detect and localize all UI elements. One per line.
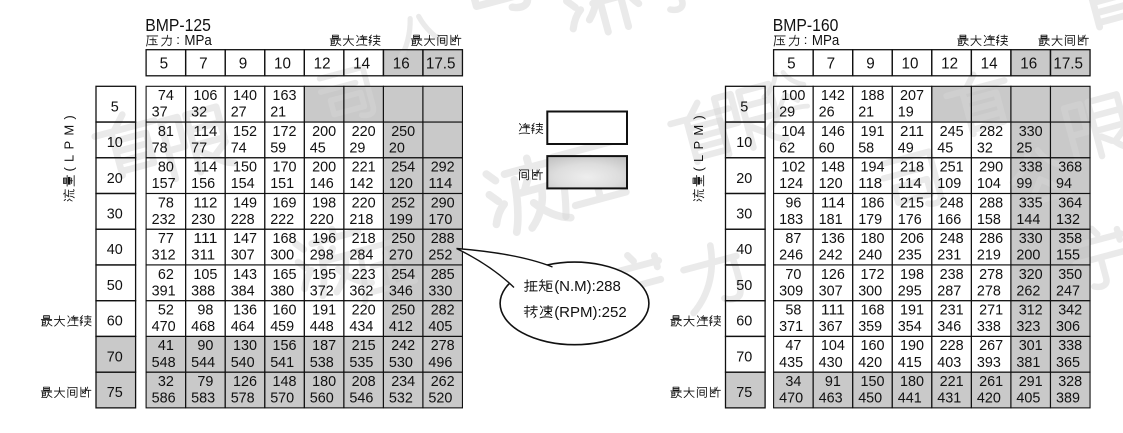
svg-text:215: 215	[352, 337, 376, 354]
svg-text:180: 180	[312, 373, 336, 390]
svg-text:70: 70	[785, 266, 801, 283]
svg-text:200: 200	[312, 123, 336, 140]
svg-text:154: 154	[231, 175, 255, 192]
svg-text:160: 160	[861, 337, 885, 354]
svg-text::: :	[176, 32, 180, 47]
svg-text:62: 62	[158, 266, 174, 283]
svg-text:215: 215	[900, 194, 924, 211]
svg-text:254: 254	[391, 266, 415, 283]
svg-text:391: 391	[152, 282, 176, 299]
svg-text:234: 234	[391, 373, 415, 390]
svg-text:91: 91	[825, 373, 841, 390]
svg-text:405: 405	[428, 318, 452, 335]
svg-text:211: 211	[900, 123, 924, 140]
svg-text:150: 150	[861, 373, 885, 390]
svg-text:330: 330	[1019, 123, 1043, 140]
svg-text:102: 102	[781, 159, 805, 176]
svg-text:535: 535	[349, 354, 373, 371]
svg-text:70: 70	[736, 348, 752, 365]
svg-text:218: 218	[352, 230, 376, 247]
svg-text:290: 290	[979, 159, 1003, 176]
svg-text:365: 365	[1056, 354, 1080, 371]
svg-text:298: 298	[310, 247, 334, 264]
svg-text:186: 186	[861, 194, 885, 211]
svg-text:17.5: 17.5	[426, 56, 456, 73]
svg-text:583: 583	[191, 390, 215, 407]
svg-text:288: 288	[431, 230, 455, 247]
svg-text:10: 10	[274, 56, 291, 73]
svg-text:278: 278	[977, 282, 1001, 299]
svg-text:222: 222	[270, 211, 294, 228]
svg-text:77: 77	[191, 139, 207, 156]
svg-text:420: 420	[858, 354, 882, 371]
svg-text:284: 284	[349, 247, 373, 264]
svg-text:144: 144	[1016, 211, 1040, 228]
svg-text:160: 160	[273, 302, 297, 319]
svg-text:218: 218	[900, 159, 924, 176]
svg-text:221: 221	[352, 159, 376, 176]
svg-text:496: 496	[428, 354, 452, 371]
svg-text:530: 530	[389, 354, 413, 371]
svg-text:114: 114	[193, 159, 217, 176]
svg-text:151: 151	[270, 175, 294, 192]
svg-text:7: 7	[199, 56, 208, 73]
svg-text:435: 435	[779, 354, 803, 371]
svg-text:(N.M):288: (N.M):288	[554, 278, 621, 295]
svg-text:546: 546	[349, 390, 373, 407]
svg-text:262: 262	[431, 373, 455, 390]
svg-text:252: 252	[391, 194, 415, 211]
svg-text:295: 295	[898, 282, 922, 299]
svg-text:136: 136	[821, 230, 845, 247]
svg-text:143: 143	[233, 266, 257, 283]
svg-text:301: 301	[1019, 337, 1043, 354]
svg-text:464: 464	[231, 318, 255, 335]
svg-text:9: 9	[866, 56, 875, 73]
svg-text:468: 468	[191, 318, 215, 335]
svg-text:29: 29	[349, 139, 365, 156]
svg-text:246: 246	[779, 247, 803, 264]
svg-text:7: 7	[827, 56, 836, 73]
svg-text:114: 114	[428, 175, 452, 192]
svg-text:200: 200	[1016, 247, 1040, 264]
svg-text:114: 114	[193, 123, 217, 140]
svg-text:230: 230	[191, 211, 215, 228]
svg-text:99: 99	[1016, 175, 1032, 192]
svg-text:MPa: MPa	[812, 33, 840, 49]
svg-text:307: 307	[231, 247, 255, 264]
svg-text:77: 77	[158, 230, 174, 247]
svg-text:231: 231	[937, 247, 961, 264]
svg-text:98: 98	[197, 302, 213, 319]
svg-text:354: 354	[898, 318, 922, 335]
svg-text:220: 220	[352, 123, 376, 140]
svg-text:49: 49	[898, 139, 914, 156]
svg-text:156: 156	[191, 175, 215, 192]
svg-text:45: 45	[937, 139, 953, 156]
svg-text:200: 200	[312, 159, 336, 176]
svg-text:104: 104	[977, 175, 1001, 192]
svg-text:307: 307	[819, 282, 843, 299]
svg-text:156: 156	[273, 337, 297, 354]
svg-text:109: 109	[937, 175, 961, 192]
svg-text:278: 278	[431, 337, 455, 354]
svg-text:372: 372	[310, 282, 334, 299]
svg-text:388: 388	[191, 282, 215, 299]
svg-text:158: 158	[977, 211, 1001, 228]
svg-text:309: 309	[779, 282, 803, 299]
svg-text:254: 254	[391, 159, 415, 176]
svg-text:434: 434	[349, 318, 373, 335]
svg-text:(LPM): (LPM)	[691, 110, 706, 171]
svg-text:5: 5	[740, 98, 748, 115]
svg-text:58: 58	[858, 139, 874, 156]
svg-text:20: 20	[389, 139, 405, 156]
svg-text:312: 312	[1019, 302, 1043, 319]
svg-text:26: 26	[819, 104, 835, 121]
svg-text:126: 126	[821, 266, 845, 283]
svg-text:235: 235	[898, 247, 922, 264]
svg-text:250: 250	[391, 123, 415, 140]
svg-text:252: 252	[428, 247, 452, 264]
svg-text:335: 335	[1019, 194, 1043, 211]
svg-text:270: 270	[389, 247, 413, 264]
svg-text:207: 207	[900, 87, 924, 104]
svg-text:34: 34	[785, 373, 801, 390]
svg-text:291: 291	[1019, 373, 1043, 390]
svg-text:364: 364	[1058, 194, 1082, 211]
svg-text:238: 238	[940, 266, 964, 283]
svg-text:208: 208	[352, 373, 376, 390]
svg-text:199: 199	[389, 211, 413, 228]
svg-text:20: 20	[736, 170, 752, 187]
svg-text:16: 16	[393, 56, 410, 73]
svg-text:371: 371	[779, 318, 803, 335]
svg-text:548: 548	[152, 354, 176, 371]
svg-text:41: 41	[158, 337, 174, 354]
svg-text:170: 170	[428, 211, 452, 228]
svg-text:181: 181	[819, 211, 843, 228]
svg-text:384: 384	[231, 282, 255, 299]
svg-text:114: 114	[821, 194, 845, 211]
svg-text:220: 220	[310, 211, 334, 228]
svg-text:155: 155	[1056, 247, 1080, 264]
svg-text:124: 124	[779, 175, 803, 192]
svg-text:12: 12	[941, 56, 958, 73]
svg-text:10: 10	[736, 134, 752, 151]
svg-text:358: 358	[1058, 230, 1082, 247]
svg-text:150: 150	[233, 159, 257, 176]
svg-text:368: 368	[1058, 159, 1082, 176]
svg-text:448: 448	[310, 318, 334, 335]
svg-text:306: 306	[1056, 318, 1080, 335]
svg-text:146: 146	[821, 123, 845, 140]
svg-text:29: 29	[779, 104, 795, 121]
svg-text:267: 267	[979, 337, 1003, 354]
svg-text:586: 586	[152, 390, 176, 407]
svg-text:32: 32	[158, 373, 174, 390]
svg-text:541: 541	[270, 354, 294, 371]
svg-text:157: 157	[152, 175, 176, 192]
svg-text:459: 459	[270, 318, 294, 335]
svg-text:21: 21	[270, 104, 286, 121]
svg-text:330: 330	[428, 282, 452, 299]
svg-text:59: 59	[270, 139, 286, 156]
svg-text:20: 20	[107, 170, 123, 187]
svg-text:228: 228	[231, 211, 255, 228]
svg-text:176: 176	[898, 211, 922, 228]
svg-text:330: 330	[1019, 230, 1043, 247]
svg-text:165: 165	[273, 266, 297, 283]
svg-text:570: 570	[270, 390, 294, 407]
svg-text:19: 19	[898, 104, 914, 121]
svg-text:245: 245	[940, 123, 964, 140]
svg-text:403: 403	[937, 354, 961, 371]
svg-text:450: 450	[858, 390, 882, 407]
svg-text:90: 90	[197, 337, 213, 354]
svg-text:196: 196	[312, 230, 336, 247]
svg-text:32: 32	[977, 139, 993, 156]
svg-text:250: 250	[391, 302, 415, 319]
svg-text:300: 300	[858, 282, 882, 299]
svg-text:191: 191	[312, 302, 336, 319]
svg-text:96: 96	[785, 194, 801, 211]
svg-text:120: 120	[819, 175, 843, 192]
svg-text:62: 62	[779, 139, 795, 156]
svg-text:75: 75	[107, 384, 123, 401]
svg-text:470: 470	[779, 390, 803, 407]
svg-text:5: 5	[160, 56, 169, 73]
svg-text:180: 180	[861, 230, 885, 247]
svg-text:60: 60	[819, 139, 835, 156]
svg-text:74: 74	[158, 87, 174, 104]
svg-text:148: 148	[273, 373, 297, 390]
svg-text:14: 14	[981, 56, 998, 73]
svg-text:112: 112	[193, 194, 217, 211]
svg-text:285: 285	[431, 266, 455, 283]
svg-text:MPa: MPa	[184, 33, 212, 49]
svg-text:323: 323	[1016, 318, 1040, 335]
svg-text:163: 163	[273, 87, 297, 104]
svg-text:251: 251	[940, 159, 964, 176]
svg-text:78: 78	[152, 139, 168, 156]
svg-text:228: 228	[940, 337, 964, 354]
svg-text:183: 183	[779, 211, 803, 228]
svg-text:441: 441	[898, 390, 922, 407]
svg-text:142: 142	[349, 175, 373, 192]
svg-text:140: 140	[233, 87, 257, 104]
svg-text:147: 147	[233, 230, 257, 247]
svg-text:405: 405	[1016, 390, 1040, 407]
svg-text:362: 362	[349, 282, 373, 299]
svg-text:10: 10	[902, 56, 919, 73]
svg-text:114: 114	[898, 175, 922, 192]
svg-text:367: 367	[819, 318, 843, 335]
svg-text:223: 223	[352, 266, 376, 283]
svg-text:250: 250	[391, 230, 415, 247]
svg-text:346: 346	[389, 282, 413, 299]
svg-text:463: 463	[819, 390, 843, 407]
svg-text:105: 105	[193, 266, 217, 283]
svg-text:328: 328	[1058, 373, 1082, 390]
svg-text:191: 191	[900, 302, 924, 319]
svg-text:350: 350	[1058, 266, 1082, 283]
svg-text:240: 240	[858, 247, 882, 264]
svg-text:136: 136	[233, 302, 257, 319]
svg-text:282: 282	[431, 302, 455, 319]
svg-text:338: 338	[1058, 337, 1082, 354]
svg-text:60: 60	[736, 313, 752, 330]
svg-text:30: 30	[107, 206, 123, 223]
svg-text:32: 32	[191, 104, 207, 121]
svg-text:540: 540	[231, 354, 255, 371]
svg-text:152: 152	[233, 123, 257, 140]
svg-text:312: 312	[152, 247, 176, 264]
svg-text:198: 198	[900, 266, 924, 283]
svg-text:21: 21	[858, 104, 874, 121]
svg-text:25: 25	[1016, 139, 1032, 156]
svg-text:190: 190	[900, 337, 924, 354]
svg-text:532: 532	[389, 390, 413, 407]
svg-text:80: 80	[158, 159, 174, 176]
svg-text:278: 278	[979, 266, 1003, 283]
svg-text:430: 430	[819, 354, 843, 371]
svg-text:380: 380	[270, 282, 294, 299]
svg-text:219: 219	[977, 247, 1001, 264]
svg-text:381: 381	[1016, 354, 1040, 371]
svg-text:420: 420	[977, 390, 1001, 407]
svg-text:195: 195	[312, 266, 336, 283]
svg-text:544: 544	[191, 354, 215, 371]
svg-text:218: 218	[349, 211, 373, 228]
svg-text:311: 311	[191, 247, 215, 264]
svg-text:111: 111	[193, 230, 217, 247]
svg-text:142: 142	[821, 87, 845, 104]
svg-text:359: 359	[858, 318, 882, 335]
svg-text:58: 58	[785, 302, 801, 319]
svg-text:198: 198	[312, 194, 336, 211]
svg-text:94: 94	[1056, 175, 1072, 192]
svg-text:14: 14	[353, 56, 370, 73]
svg-text:338: 338	[977, 318, 1001, 335]
svg-text:221: 221	[940, 373, 964, 390]
svg-text:168: 168	[273, 230, 297, 247]
svg-text:231: 231	[940, 302, 964, 319]
svg-text:81: 81	[158, 123, 174, 140]
svg-text:261: 261	[979, 373, 1003, 390]
svg-text:187: 187	[312, 337, 336, 354]
svg-text:106: 106	[193, 87, 217, 104]
svg-text:149: 149	[233, 194, 257, 211]
svg-text:132: 132	[1056, 211, 1080, 228]
svg-text:27: 27	[231, 104, 247, 121]
svg-text:87: 87	[785, 230, 801, 247]
svg-text:120: 120	[389, 175, 413, 192]
svg-text:148: 148	[821, 159, 845, 176]
svg-text:100: 100	[781, 87, 805, 104]
svg-text:242: 242	[391, 337, 415, 354]
svg-text:16: 16	[1020, 56, 1037, 73]
svg-text:12: 12	[314, 56, 331, 73]
svg-text:342: 342	[1058, 302, 1082, 319]
svg-text:538: 538	[310, 354, 334, 371]
svg-text:262: 262	[1016, 282, 1040, 299]
svg-text:146: 146	[310, 175, 334, 192]
svg-text:338: 338	[1019, 159, 1043, 176]
svg-text:300: 300	[270, 247, 294, 264]
svg-text:578: 578	[231, 390, 255, 407]
svg-text:40: 40	[107, 241, 123, 258]
svg-text:172: 172	[273, 123, 297, 140]
svg-text:5: 5	[111, 98, 119, 115]
svg-text:74: 74	[231, 139, 247, 156]
svg-text::: :	[804, 32, 808, 47]
svg-text:431: 431	[937, 390, 961, 407]
svg-text:168: 168	[861, 302, 885, 319]
svg-text:288: 288	[979, 194, 1003, 211]
svg-text:50: 50	[736, 277, 752, 294]
svg-text:389: 389	[1056, 390, 1080, 407]
svg-text:393: 393	[977, 354, 1001, 371]
svg-text:126: 126	[233, 373, 257, 390]
svg-text:118: 118	[858, 175, 882, 192]
svg-text:172: 172	[861, 266, 885, 283]
svg-text:415: 415	[898, 354, 922, 371]
svg-text:130: 130	[233, 337, 257, 354]
svg-text:52: 52	[158, 302, 174, 319]
svg-text:560: 560	[310, 390, 334, 407]
svg-text:45: 45	[310, 139, 326, 156]
svg-text:79: 79	[197, 373, 213, 390]
svg-text:188: 188	[861, 87, 885, 104]
svg-text:287: 287	[937, 282, 961, 299]
svg-text:247: 247	[1056, 282, 1080, 299]
svg-text:320: 320	[1019, 266, 1043, 283]
svg-text:232: 232	[152, 211, 176, 228]
svg-text:191: 191	[861, 123, 885, 140]
svg-text:248: 248	[940, 230, 964, 247]
svg-text:179: 179	[858, 211, 882, 228]
svg-text:111: 111	[821, 302, 845, 319]
svg-text:248: 248	[940, 194, 964, 211]
svg-text:242: 242	[819, 247, 843, 264]
svg-text:37: 37	[152, 104, 168, 121]
svg-text:5: 5	[787, 56, 796, 73]
svg-text:282: 282	[979, 123, 1003, 140]
svg-text:30: 30	[736, 206, 752, 223]
svg-text:346: 346	[937, 318, 961, 335]
svg-text:194: 194	[861, 159, 885, 176]
svg-text:169: 169	[273, 194, 297, 211]
svg-text:17.5: 17.5	[1053, 56, 1083, 73]
svg-text:47: 47	[785, 337, 801, 354]
svg-text:271: 271	[979, 302, 1003, 319]
svg-text:166: 166	[937, 211, 961, 228]
svg-text:(RPM):252: (RPM):252	[554, 304, 627, 321]
svg-text:206: 206	[900, 230, 924, 247]
svg-text:10: 10	[107, 134, 123, 151]
svg-text:78: 78	[158, 194, 174, 211]
svg-text:75: 75	[736, 384, 752, 401]
svg-text:292: 292	[431, 159, 455, 176]
svg-text:220: 220	[352, 302, 376, 319]
svg-text:180: 180	[900, 373, 924, 390]
svg-text:290: 290	[431, 194, 455, 211]
svg-text:50: 50	[107, 277, 123, 294]
svg-text:170: 170	[273, 159, 297, 176]
svg-text:104: 104	[781, 123, 805, 140]
svg-text:70: 70	[107, 348, 123, 365]
